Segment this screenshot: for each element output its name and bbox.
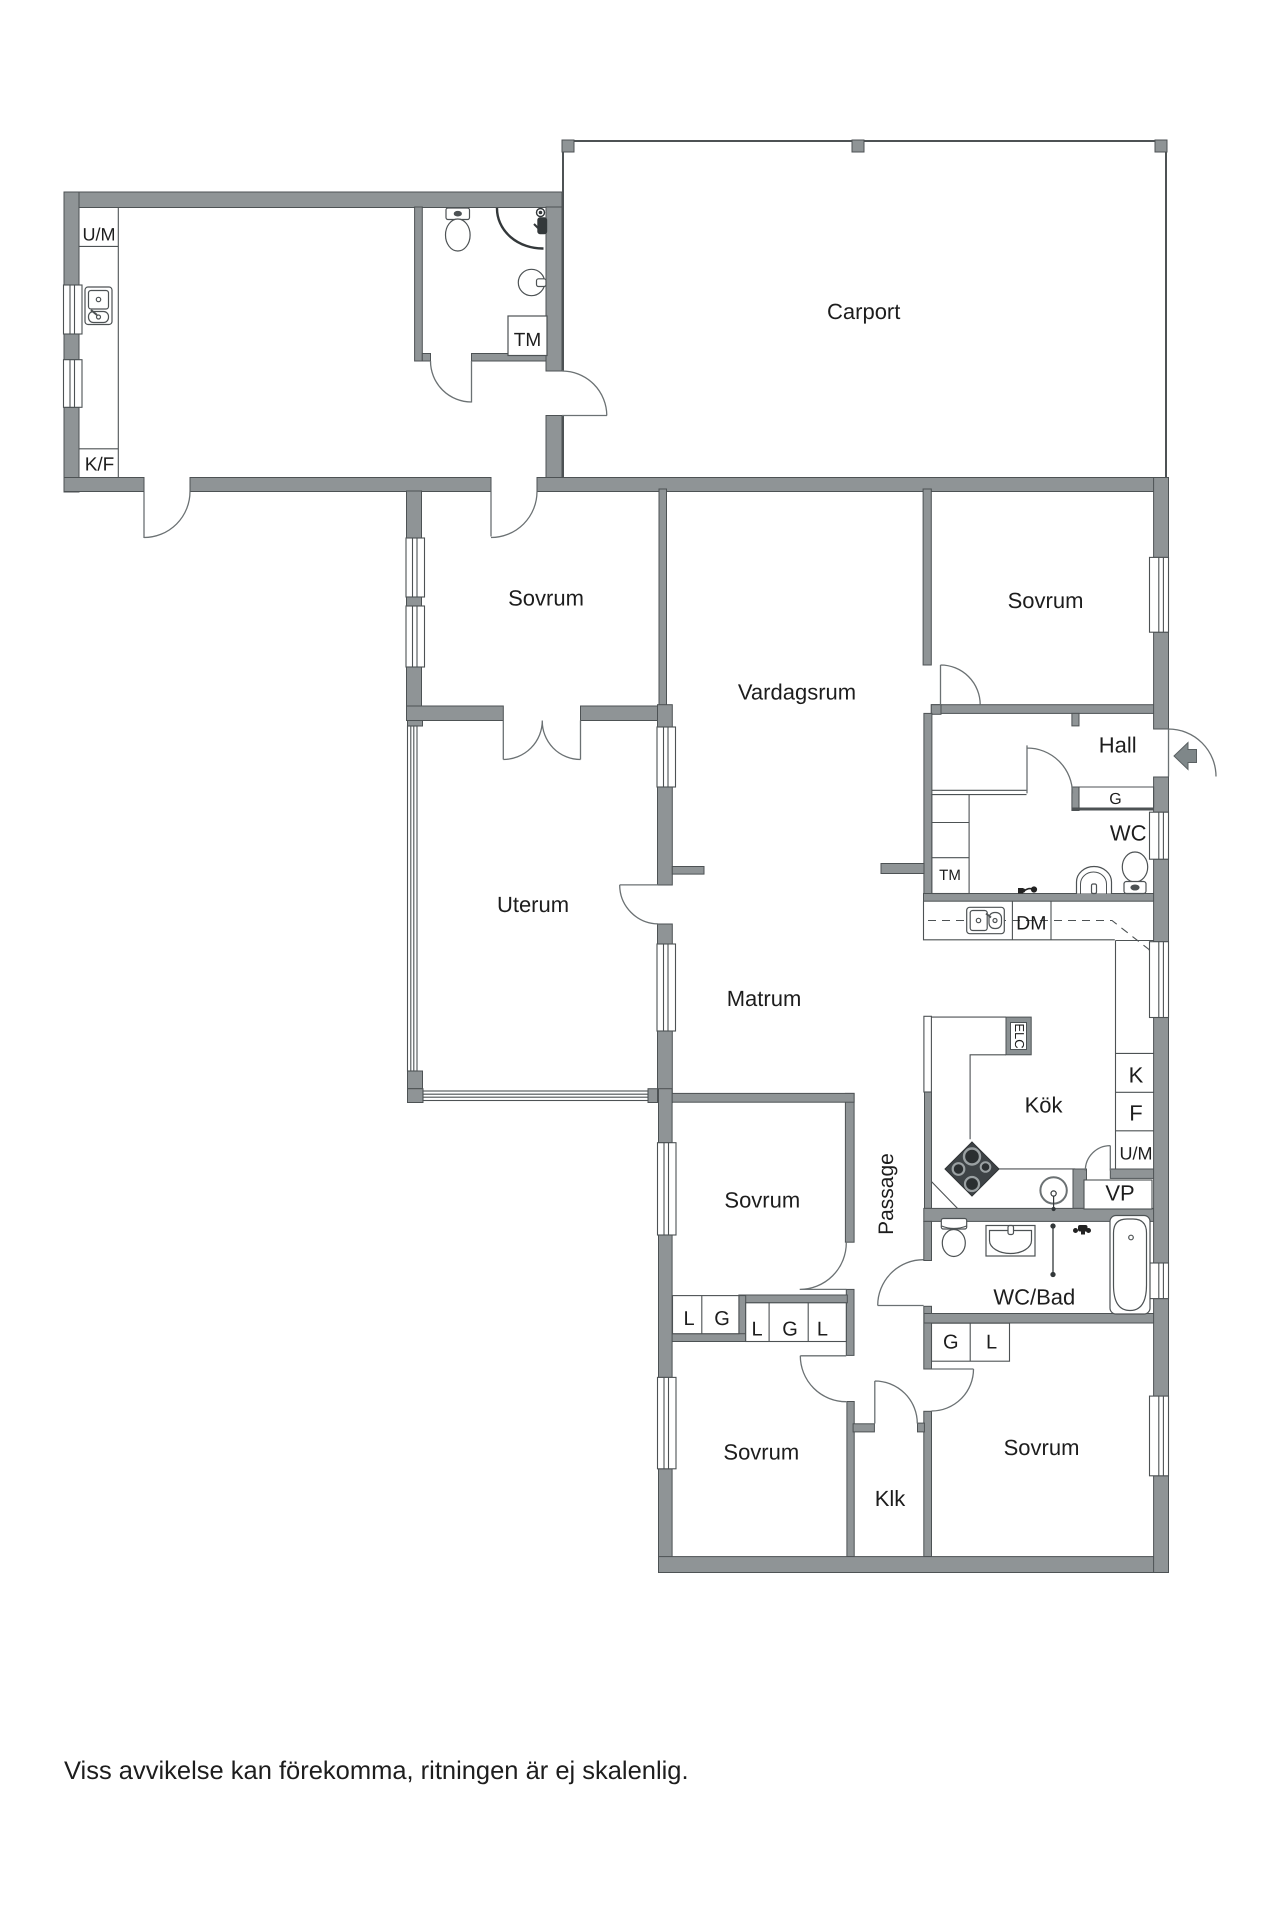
- svg-text:WC/Bad: WC/Bad: [993, 1285, 1075, 1310]
- svg-text:TM: TM: [939, 867, 961, 884]
- svg-text:G: G: [943, 1332, 959, 1354]
- svg-text:L: L: [683, 1308, 694, 1330]
- svg-text:Hall: Hall: [1099, 733, 1137, 758]
- svg-text:U/M: U/M: [1120, 1144, 1153, 1164]
- svg-text:L: L: [817, 1319, 828, 1341]
- svg-text:F: F: [1129, 1101, 1142, 1126]
- svg-text:Sovrum: Sovrum: [1008, 588, 1084, 613]
- svg-text:Uterum: Uterum: [497, 892, 569, 917]
- svg-text:Carport: Carport: [827, 299, 900, 324]
- svg-text:K: K: [1129, 1063, 1144, 1088]
- svg-text:Vardagsrum: Vardagsrum: [738, 680, 856, 705]
- svg-text:VP: VP: [1105, 1181, 1134, 1206]
- svg-text:Passage: Passage: [875, 1153, 898, 1235]
- svg-text:G: G: [782, 1319, 798, 1341]
- svg-text:Sovrum: Sovrum: [724, 1188, 800, 1213]
- svg-text:DM: DM: [1016, 913, 1046, 935]
- svg-text:Sovrum: Sovrum: [1004, 1435, 1080, 1460]
- svg-text:L: L: [986, 1332, 997, 1354]
- svg-text:U/M: U/M: [83, 225, 116, 245]
- svg-text:G: G: [714, 1308, 730, 1330]
- svg-text:Kök: Kök: [1025, 1092, 1064, 1117]
- svg-text:Sovrum: Sovrum: [723, 1440, 799, 1465]
- svg-text:Sovrum: Sovrum: [508, 586, 584, 611]
- svg-text:K/F: K/F: [85, 455, 115, 476]
- svg-text:ELC: ELC: [1012, 1023, 1027, 1048]
- svg-text:TM: TM: [514, 330, 541, 351]
- svg-text:G: G: [1109, 791, 1121, 808]
- svg-text:L: L: [751, 1319, 762, 1341]
- svg-text:Klk: Klk: [875, 1486, 907, 1511]
- svg-text:WC: WC: [1110, 820, 1147, 845]
- svg-text:Matrum: Matrum: [727, 986, 802, 1011]
- svg-text:Viss avvikelse kan förekomma,: Viss avvikelse kan förekomma, ritningen …: [64, 1757, 689, 1785]
